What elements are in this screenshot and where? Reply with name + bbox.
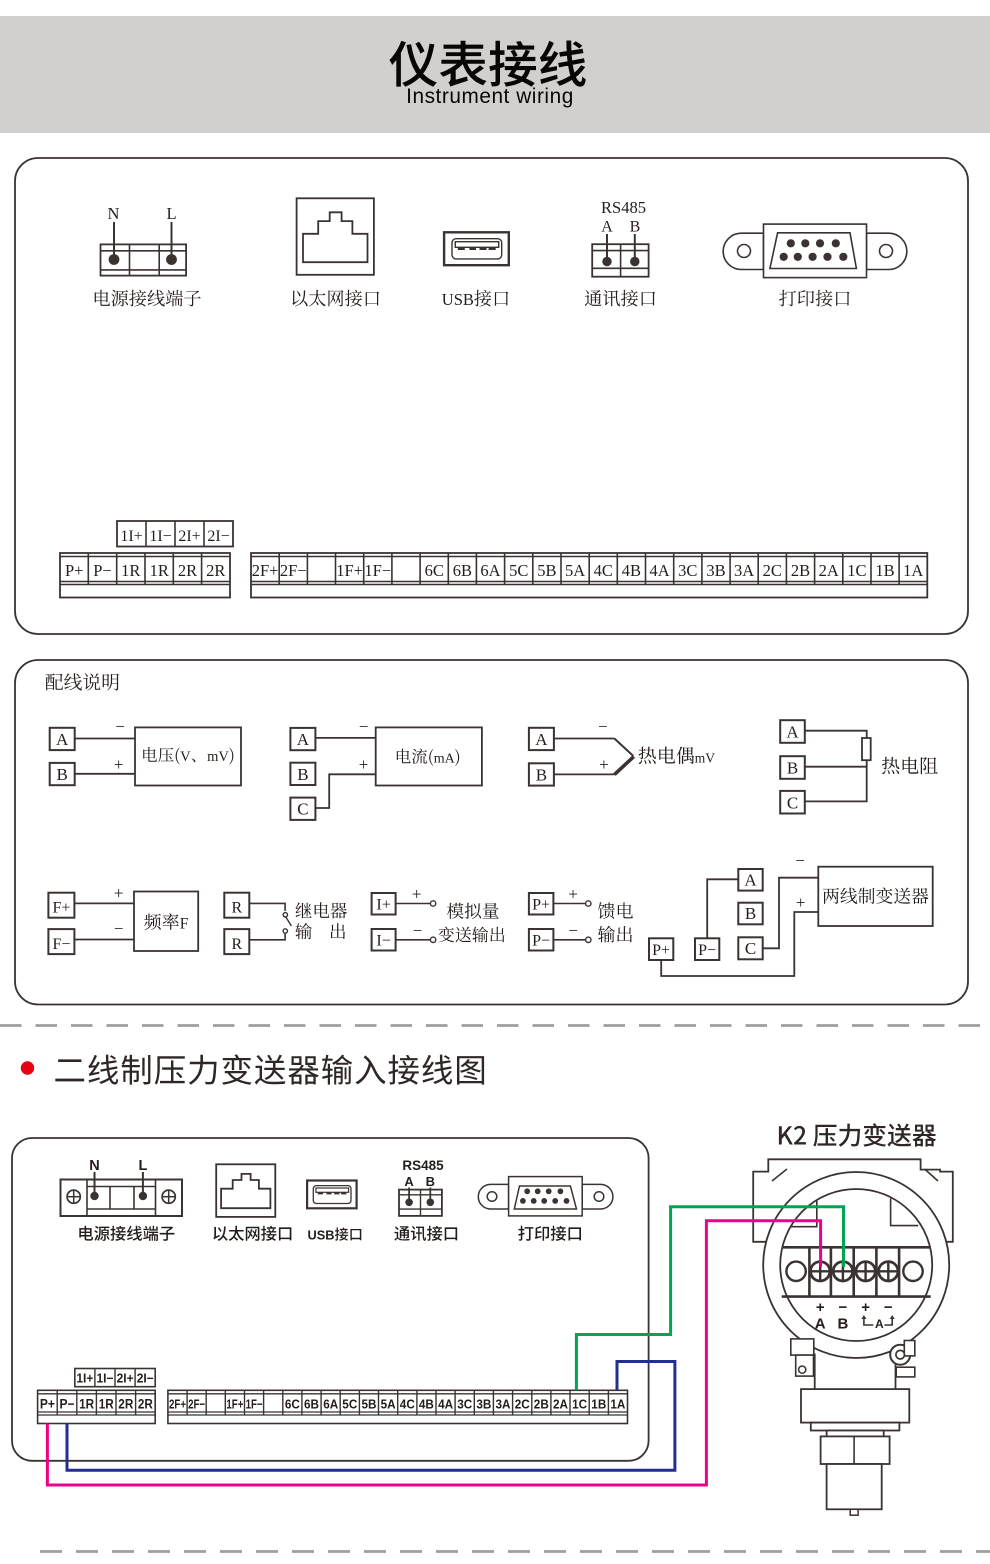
svg-text:R: R xyxy=(231,936,242,953)
svg-text:A: A xyxy=(535,730,548,749)
svg-text:1R: 1R xyxy=(99,1397,114,1412)
svg-text:L: L xyxy=(166,204,176,223)
svg-text:P−: P− xyxy=(532,932,550,949)
svg-text:−: − xyxy=(568,921,578,940)
svg-text:1R: 1R xyxy=(150,561,169,580)
svg-text:C: C xyxy=(787,793,798,812)
svg-text:C: C xyxy=(297,800,308,819)
svg-text:V: V xyxy=(180,749,191,765)
svg-text:2R: 2R xyxy=(138,1397,153,1412)
svg-text:Instrument wiring: Instrument wiring xyxy=(406,85,574,108)
svg-text:P−: P− xyxy=(698,942,716,959)
svg-text:B: B xyxy=(837,1315,848,1332)
svg-text:B: B xyxy=(426,1174,435,1189)
svg-text:4B: 4B xyxy=(622,561,641,580)
svg-text:3A: 3A xyxy=(734,561,754,580)
svg-text:A: A xyxy=(404,1174,414,1189)
svg-text:mV: mV xyxy=(695,751,716,766)
svg-text:2I+: 2I+ xyxy=(178,528,200,545)
svg-text:I−: I− xyxy=(376,932,390,949)
svg-text:P−: P− xyxy=(60,1397,75,1412)
svg-text:+: + xyxy=(568,885,578,904)
svg-text:1I+: 1I+ xyxy=(120,528,142,545)
svg-text:2F−: 2F− xyxy=(188,1397,205,1412)
svg-text:1A: 1A xyxy=(610,1397,626,1412)
svg-text:1R: 1R xyxy=(121,561,140,580)
svg-text:1F+: 1F+ xyxy=(336,561,363,580)
svg-text:P+: P+ xyxy=(65,561,83,580)
svg-text:2F−: 2F− xyxy=(280,561,307,580)
svg-text:2A: 2A xyxy=(553,1397,569,1412)
svg-text:1I+: 1I+ xyxy=(76,1372,93,1386)
svg-text:N: N xyxy=(89,1158,99,1174)
svg-text:1I−: 1I− xyxy=(149,528,171,545)
svg-text:−: − xyxy=(795,851,805,870)
svg-text:RS485: RS485 xyxy=(601,198,646,217)
svg-text:P+: P+ xyxy=(652,942,670,959)
svg-text:5A: 5A xyxy=(381,1397,397,1412)
svg-text:+: + xyxy=(861,1299,870,1316)
svg-text:+: + xyxy=(796,893,806,912)
svg-text:+: + xyxy=(359,755,369,774)
svg-text:mV: mV xyxy=(207,749,229,765)
svg-text:B: B xyxy=(630,219,641,236)
svg-text:3C: 3C xyxy=(457,1397,473,1412)
svg-text:2R: 2R xyxy=(118,1397,133,1412)
svg-text:mA: mA xyxy=(434,752,456,767)
svg-text:RS485: RS485 xyxy=(402,1158,444,1173)
svg-text:6A: 6A xyxy=(323,1397,339,1412)
svg-text:1A: 1A xyxy=(903,561,923,580)
svg-text:P+: P+ xyxy=(532,896,550,913)
svg-text:B: B xyxy=(787,759,798,778)
svg-text:2A: 2A xyxy=(819,561,839,580)
svg-text:2B: 2B xyxy=(534,1397,549,1412)
svg-text:1F−: 1F− xyxy=(364,561,391,580)
svg-text:B: B xyxy=(57,765,68,784)
svg-text:F−: F− xyxy=(52,936,70,953)
svg-text:5B: 5B xyxy=(537,561,556,580)
svg-text:3C: 3C xyxy=(678,561,697,580)
svg-text:B: B xyxy=(536,765,547,784)
svg-text:A: A xyxy=(297,730,310,749)
svg-text:1C: 1C xyxy=(847,561,866,580)
svg-text:A: A xyxy=(601,219,613,236)
svg-text:2B: 2B xyxy=(791,561,810,580)
svg-text:6C: 6C xyxy=(425,561,444,580)
svg-text:3A: 3A xyxy=(496,1397,512,1412)
svg-text:P+: P+ xyxy=(40,1397,55,1412)
svg-text:1C: 1C xyxy=(572,1397,588,1412)
svg-text:6B: 6B xyxy=(304,1397,319,1412)
svg-text:B: B xyxy=(745,904,756,923)
svg-text:−: − xyxy=(884,1299,893,1316)
svg-text:3B: 3B xyxy=(706,561,725,580)
svg-text:A: A xyxy=(786,723,799,742)
svg-text:4C: 4C xyxy=(594,561,613,580)
svg-text:+: + xyxy=(816,1299,825,1316)
svg-text:N: N xyxy=(108,204,120,223)
svg-text:+: + xyxy=(114,884,124,903)
svg-text:1B: 1B xyxy=(591,1397,606,1412)
svg-text:6C: 6C xyxy=(285,1397,301,1412)
svg-text:1I−: 1I− xyxy=(97,1372,114,1386)
svg-text:2F+: 2F+ xyxy=(252,561,279,580)
svg-text:6B: 6B xyxy=(453,561,472,580)
svg-text:USB: USB xyxy=(442,290,474,309)
svg-text:4A: 4A xyxy=(650,561,670,580)
svg-text:5C: 5C xyxy=(509,561,528,580)
svg-text:6A: 6A xyxy=(480,561,500,580)
svg-text:−: − xyxy=(598,717,608,736)
svg-text:2C: 2C xyxy=(515,1397,531,1412)
svg-text:5B: 5B xyxy=(362,1397,377,1412)
svg-text:5C: 5C xyxy=(342,1397,358,1412)
svg-text:I+: I+ xyxy=(376,896,390,913)
svg-text:P−: P− xyxy=(93,561,111,580)
svg-text:2I−: 2I− xyxy=(137,1372,154,1386)
svg-text:1R: 1R xyxy=(79,1397,94,1412)
svg-text:A: A xyxy=(56,730,69,749)
svg-text:−: − xyxy=(114,919,124,938)
svg-text:−: − xyxy=(413,921,423,940)
svg-text:+: + xyxy=(114,755,124,774)
svg-text:R: R xyxy=(231,900,242,917)
svg-text:5A: 5A xyxy=(565,561,585,580)
svg-text:A: A xyxy=(875,1317,884,1331)
svg-text:3B: 3B xyxy=(476,1397,491,1412)
svg-text:+: + xyxy=(412,885,422,904)
svg-text:−: − xyxy=(839,1299,848,1316)
svg-text:2F+: 2F+ xyxy=(169,1397,186,1412)
svg-text:L: L xyxy=(138,1158,147,1174)
svg-text:1F−: 1F− xyxy=(246,1397,263,1412)
svg-text:C: C xyxy=(745,939,756,958)
svg-text:F+: F+ xyxy=(52,900,70,917)
svg-text:2R: 2R xyxy=(206,561,225,580)
svg-text:2I+: 2I+ xyxy=(117,1372,134,1386)
svg-text:USB: USB xyxy=(308,1228,335,1243)
svg-text:−: − xyxy=(115,717,125,736)
svg-text:1F+: 1F+ xyxy=(226,1397,243,1412)
svg-text:4C: 4C xyxy=(400,1397,416,1412)
svg-text:A: A xyxy=(744,870,757,889)
svg-text:A: A xyxy=(815,1315,826,1332)
svg-text:+: + xyxy=(599,755,609,774)
svg-text:1B: 1B xyxy=(875,561,894,580)
svg-text:2R: 2R xyxy=(178,561,197,580)
svg-text:2I−: 2I− xyxy=(207,528,229,545)
svg-text:4A: 4A xyxy=(438,1397,454,1412)
svg-text:F: F xyxy=(180,916,189,933)
svg-text:4B: 4B xyxy=(419,1397,434,1412)
svg-text:B: B xyxy=(297,765,308,784)
svg-text:−: − xyxy=(359,717,369,736)
svg-text:2C: 2C xyxy=(763,561,782,580)
